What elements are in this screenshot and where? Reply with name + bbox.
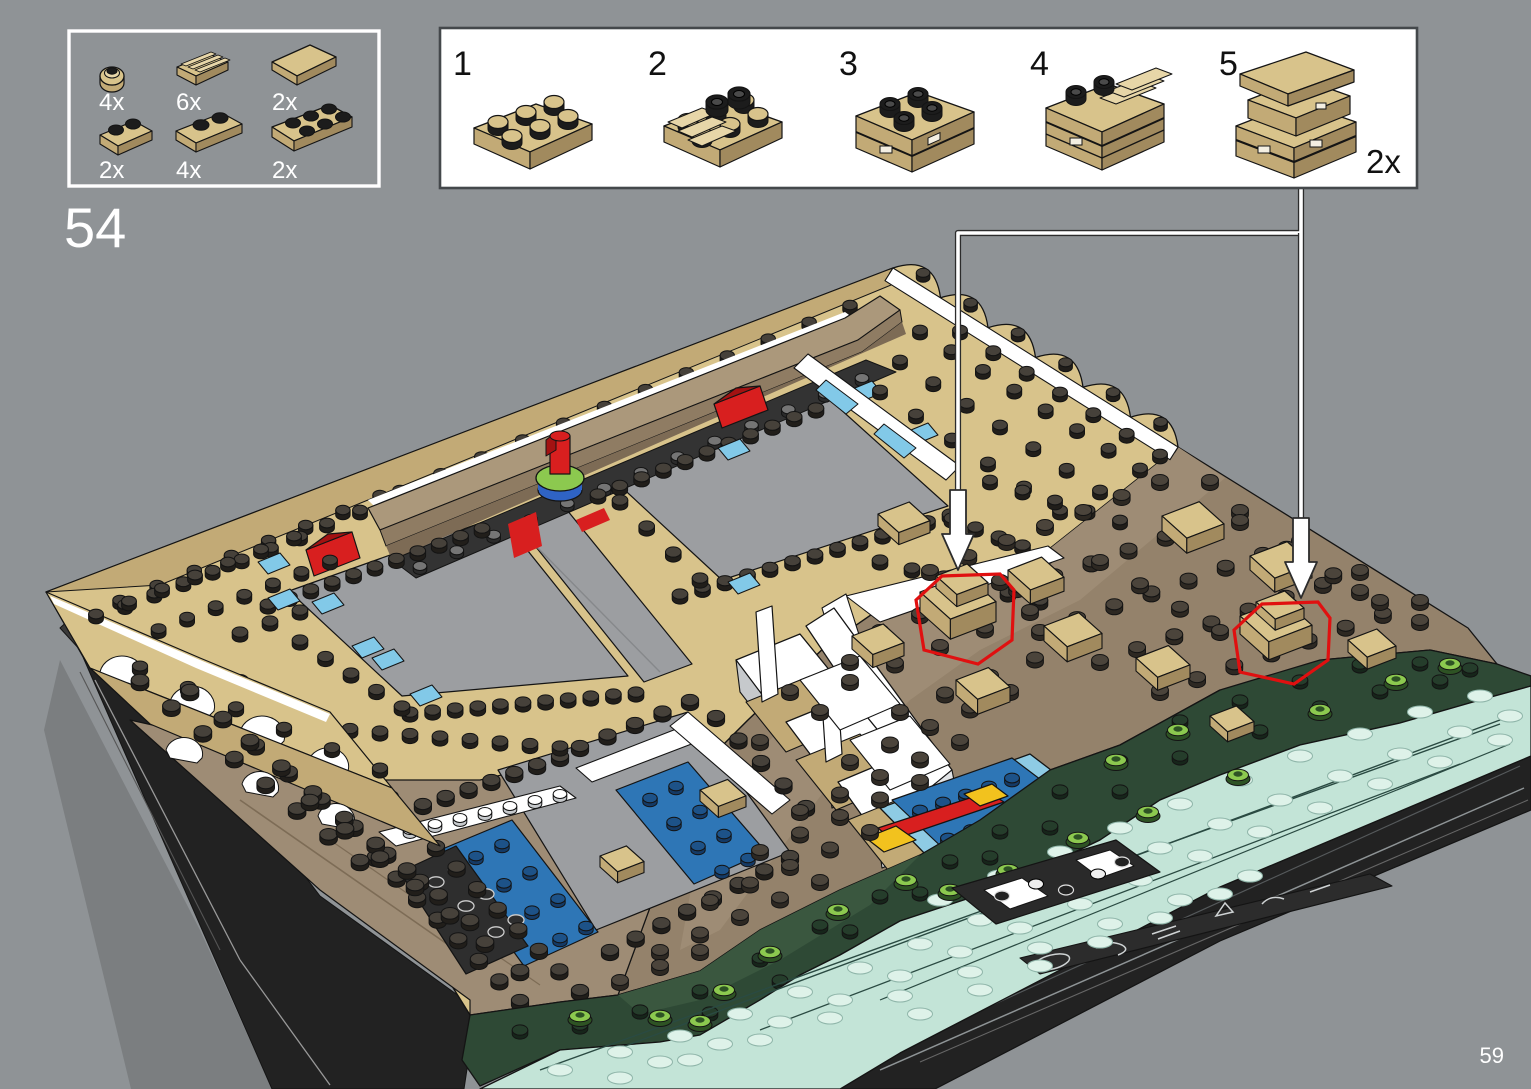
svg-text:4x: 4x [99, 89, 124, 116]
svg-text:4: 4 [1030, 45, 1049, 83]
svg-text:2x: 2x [272, 157, 297, 184]
svg-text:5: 5 [1219, 45, 1238, 83]
svg-text:1: 1 [453, 45, 472, 83]
svg-text:2x: 2x [1366, 143, 1401, 180]
svg-text:6x: 6x [176, 89, 201, 116]
svg-text:2x: 2x [99, 157, 124, 184]
svg-text:2: 2 [648, 45, 667, 83]
svg-text:59: 59 [1480, 1043, 1504, 1068]
svg-text:3: 3 [839, 45, 858, 83]
svg-text:54: 54 [64, 196, 126, 259]
svg-text:4x: 4x [176, 157, 201, 184]
svg-text:2x: 2x [272, 89, 297, 116]
